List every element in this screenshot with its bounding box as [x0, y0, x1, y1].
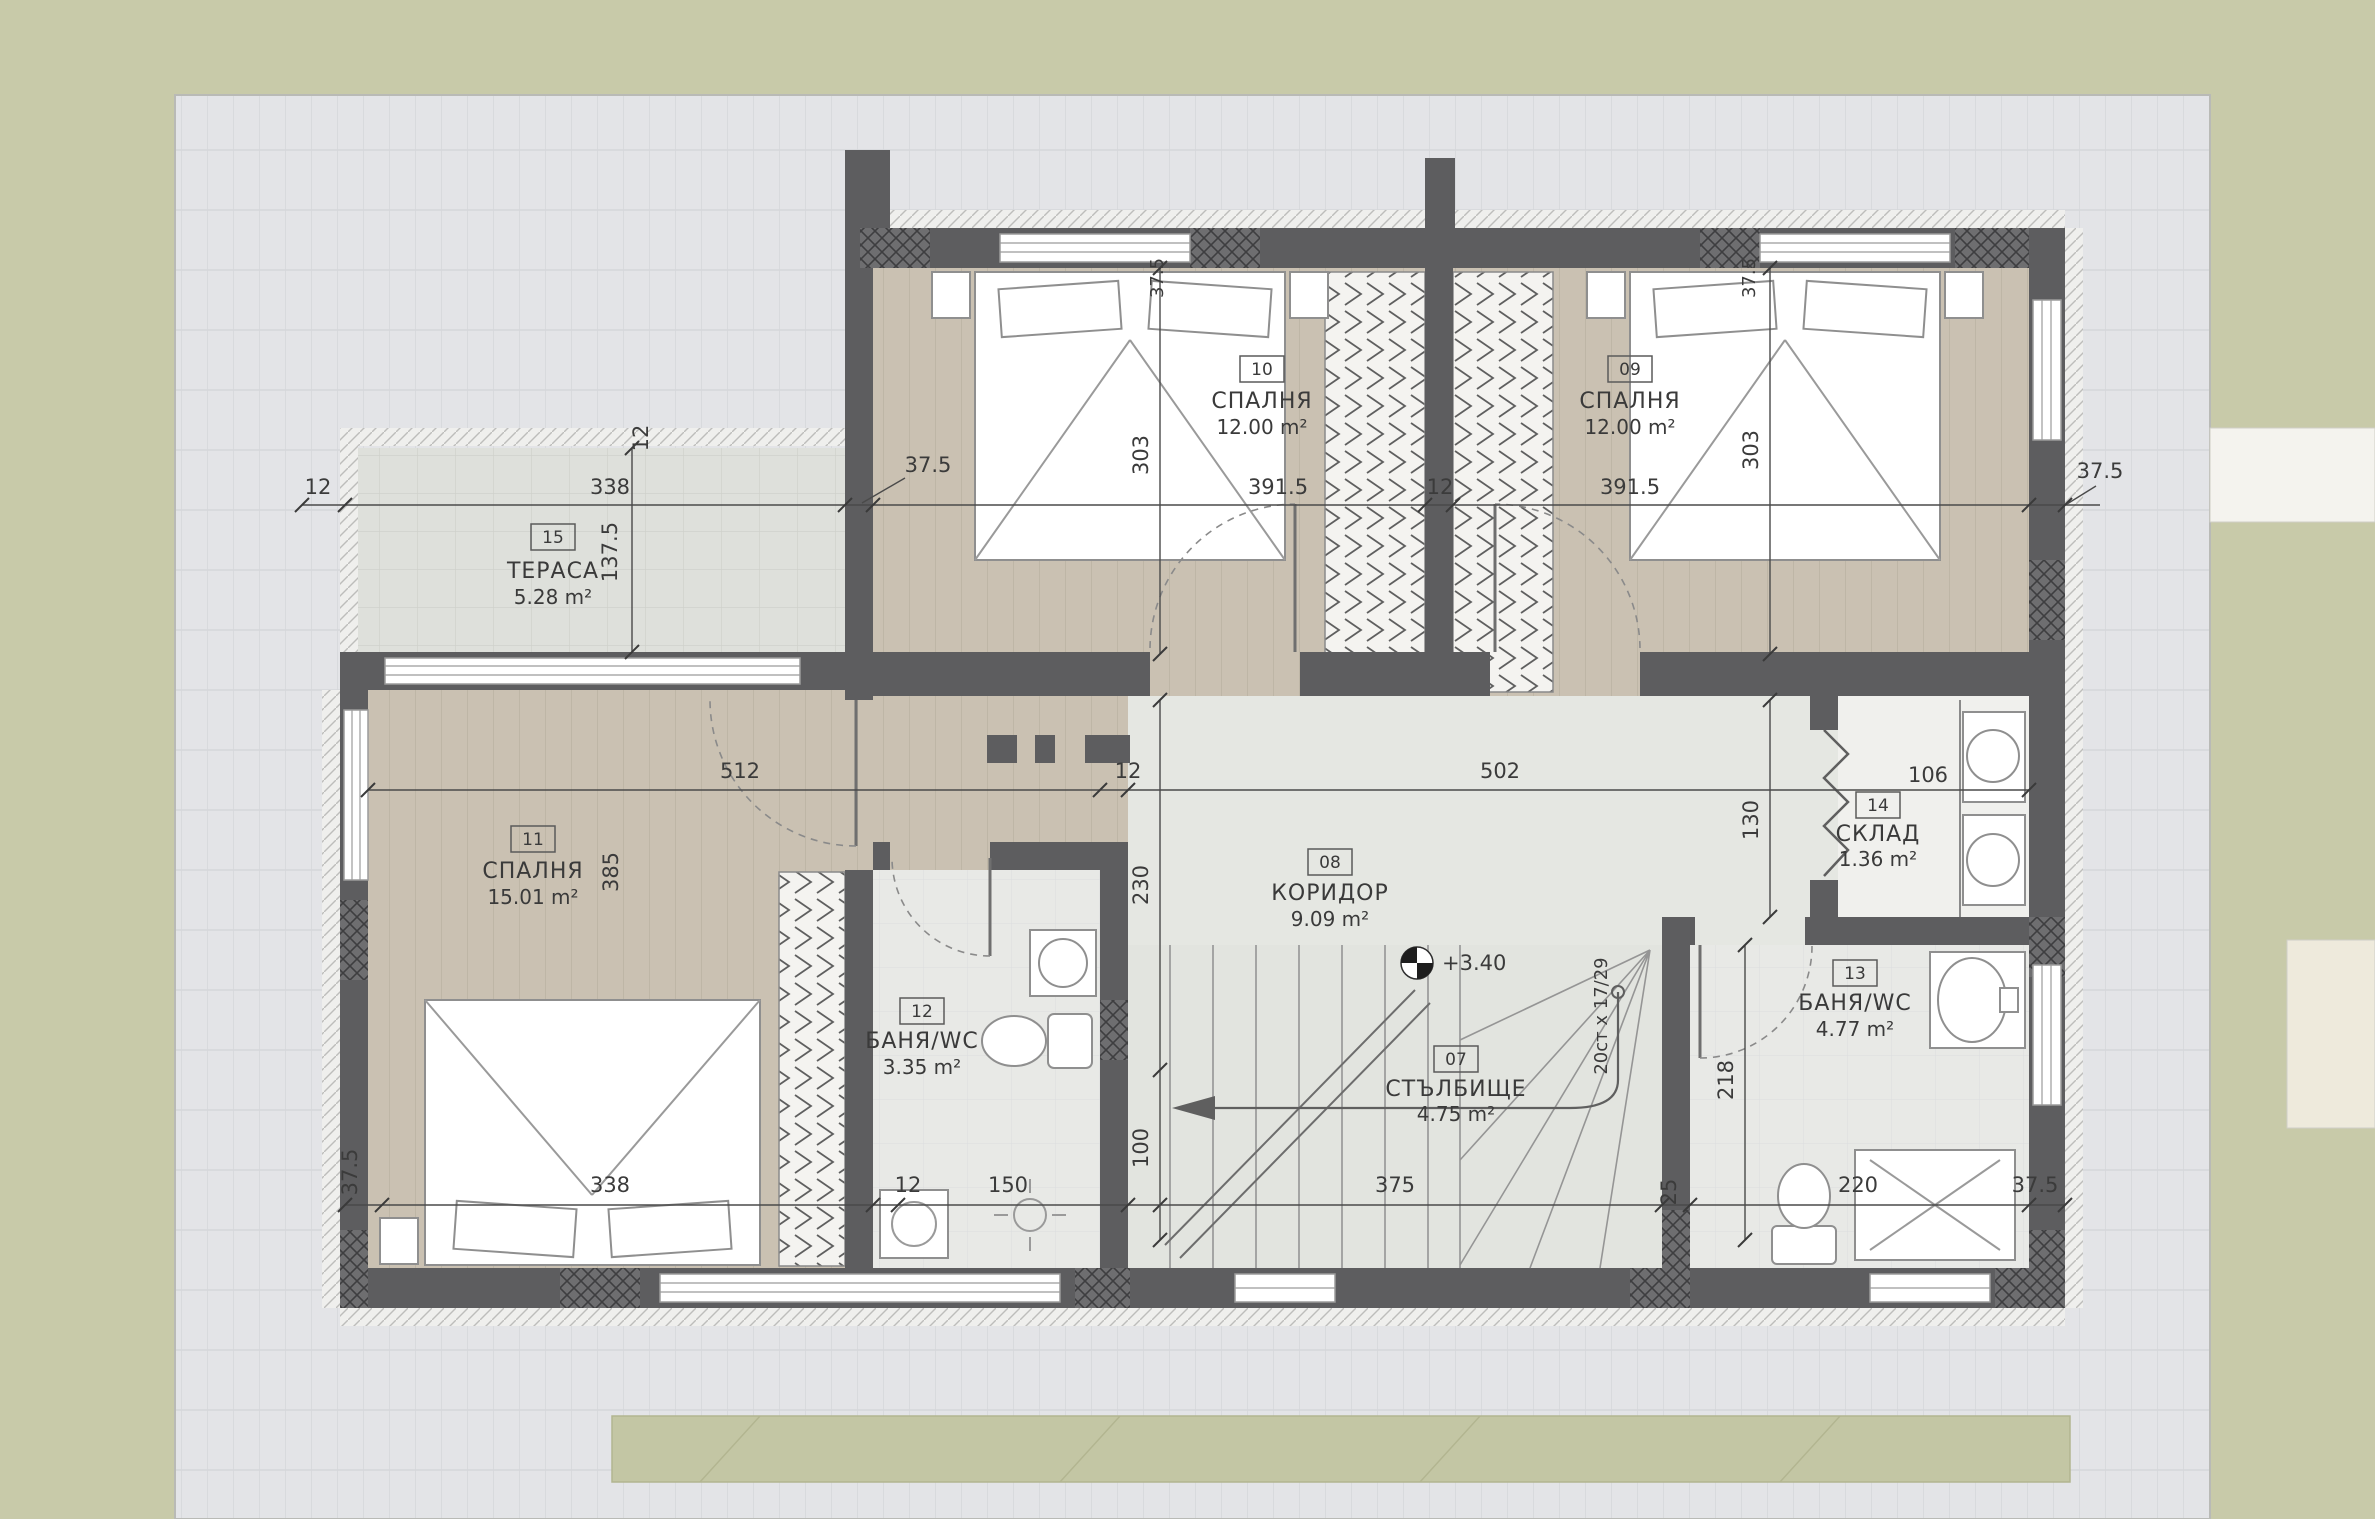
svg-text:12: 12 — [911, 1002, 933, 1022]
svg-text:БАНЯ/WC: БАНЯ/WC — [865, 1029, 979, 1054]
svg-text:13: 13 — [1844, 964, 1866, 984]
terrace-railing-north — [340, 428, 845, 446]
wall-stub-center — [1425, 158, 1455, 230]
svg-text:3.35 m²: 3.35 m² — [883, 1055, 961, 1079]
window-bedroom-10 — [1000, 234, 1190, 262]
dim-bath12-150: 150 — [988, 1173, 1028, 1197]
terrace-door-window — [385, 658, 800, 684]
svg-text:09: 09 — [1619, 360, 1641, 380]
dim-terrace-12-marker: 12 — [629, 425, 653, 452]
dim-corridor-230: 230 — [1129, 865, 1153, 905]
dim-bottom-37-5-left: 37.5 — [338, 1149, 362, 1196]
window-east-bathroom-13 — [2033, 965, 2061, 1105]
svg-text:СКЛАД: СКЛАД — [1836, 822, 1921, 847]
dim-wall-37-5-left: 37.5 — [905, 453, 952, 477]
dim-wall-12: 12 — [1115, 759, 1142, 783]
bathroom-13-north-wall — [1805, 917, 2029, 945]
dim-bedroom10-391-5: 391.5 — [1248, 475, 1308, 499]
dim-terrace-12: 12 — [305, 475, 332, 499]
svg-text:БАНЯ/WC: БАНЯ/WC — [1798, 991, 1912, 1016]
stair-west-wall — [1100, 842, 1128, 1308]
svg-text:11: 11 — [522, 830, 544, 850]
dim-hall-512: 512 — [720, 759, 760, 783]
svg-text:07: 07 — [1445, 1050, 1467, 1070]
window-south-bathroom-13 — [1870, 1274, 1990, 1302]
dim-terrace-137-5: 137.5 — [598, 522, 622, 582]
dim-bedroom11-385: 385 — [599, 852, 623, 892]
dim-closet-12: 12 — [1427, 475, 1454, 499]
svg-text:5.28 m²: 5.28 m² — [514, 585, 592, 609]
west-wall-upper — [845, 268, 873, 658]
dim-bedroom10-303: 303 — [1129, 435, 1153, 475]
neighbor-structure-top — [2210, 428, 2375, 522]
dim-terrace-338: 338 — [590, 475, 630, 499]
dim-stair-375: 375 — [1375, 1173, 1415, 1197]
window-south-bedroom-11 — [660, 1274, 1060, 1302]
dim-stair-100: 100 — [1129, 1128, 1153, 1168]
dim-bath13-220: 220 — [1838, 1173, 1878, 1197]
closet-bedroom-10 — [1325, 272, 1425, 692]
svg-text:15.01 m²: 15.01 m² — [487, 885, 578, 909]
elevation-marker: +3.40 — [1401, 947, 1506, 979]
svg-text:СПАЛНЯ: СПАЛНЯ — [482, 859, 583, 884]
floor-plan-drawing: 20ст x 17/29 — [0, 0, 2375, 1519]
floor-plan-canvas: 20ст x 17/29 — [0, 0, 2375, 1519]
dim-corridor-130: 130 — [1739, 800, 1763, 840]
dim-pier-37-5-b: 37.5 — [1739, 258, 1760, 298]
closet-bedroom-09 — [1453, 272, 1553, 692]
lower-roof-band — [612, 1416, 2070, 1482]
dim-pier-37-5-a: 37.5 — [1147, 258, 1168, 298]
svg-text:08: 08 — [1319, 853, 1341, 873]
svg-text:СПАЛНЯ: СПАЛНЯ — [1579, 389, 1680, 414]
dim-wall-37-5-right: 37.5 — [2077, 459, 2124, 483]
svg-text:12.00 m²: 12.00 m² — [1216, 415, 1307, 439]
window-south-stair — [1235, 1274, 1335, 1302]
dim-bottom-37-5-right: 37.5 — [2012, 1173, 2059, 1197]
washing-machine-bathroom-12 — [880, 1190, 948, 1258]
wall-stub-left — [845, 150, 890, 230]
svg-text:ТЕРАСА: ТЕРАСА — [506, 559, 599, 584]
window-bedroom-09 — [1760, 234, 1950, 262]
svg-text:4.77 m²: 4.77 m² — [1816, 1017, 1894, 1041]
svg-text:4.75 m²: 4.75 m² — [1417, 1102, 1495, 1126]
dim-wall-25: 25 — [1657, 1179, 1681, 1206]
sink-bathroom-12 — [1030, 930, 1096, 996]
toilet-bathroom-13 — [1772, 1164, 1836, 1264]
dim-bedroom09-303: 303 — [1739, 430, 1763, 470]
dim-bath13-218: 218 — [1714, 1060, 1738, 1100]
svg-text:15: 15 — [542, 528, 564, 548]
svg-text:10: 10 — [1251, 360, 1273, 380]
svg-text:СТЪЛБИЩЕ: СТЪЛБИЩЕ — [1385, 1077, 1526, 1102]
dim-bottom-12: 12 — [895, 1173, 922, 1197]
dim-niche-106: 106 — [1908, 763, 1948, 787]
neighbor-structure-right — [2287, 940, 2375, 1128]
sink-bathroom-13 — [1930, 952, 2025, 1048]
svg-text:12.00 m²: 12.00 m² — [1584, 415, 1675, 439]
svg-text:14: 14 — [1867, 796, 1889, 816]
stair-note: 20ст x 17/29 — [1591, 957, 1612, 1074]
bed-bedroom-11 — [380, 1000, 760, 1265]
dim-corridor-502: 502 — [1480, 759, 1520, 783]
svg-text:9.09 m²: 9.09 m² — [1291, 907, 1369, 931]
terrace-railing-west — [340, 428, 358, 652]
dim-bedroom09-391-5: 391.5 — [1600, 475, 1660, 499]
elevation-value: +3.40 — [1442, 951, 1506, 975]
svg-text:СПАЛНЯ: СПАЛНЯ — [1211, 389, 1312, 414]
window-east-bedroom-09 — [2033, 300, 2061, 440]
svg-text:1.36 m²: 1.36 m² — [1839, 847, 1917, 871]
closet-bedroom-11 — [779, 872, 845, 1266]
svg-text:КОРИДОР: КОРИДОР — [1271, 881, 1388, 906]
dim-bottom-338: 338 — [590, 1173, 630, 1197]
